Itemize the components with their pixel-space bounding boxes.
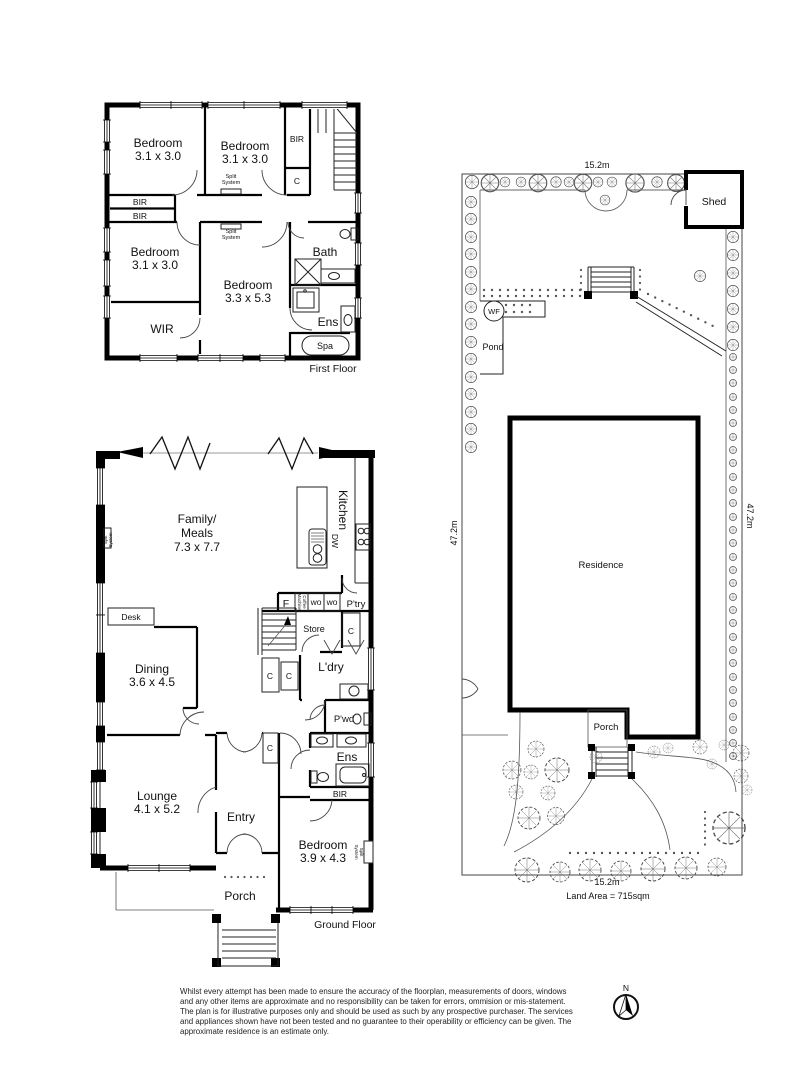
- ff-wir-label: WIR: [150, 322, 174, 336]
- ff-window: [208, 101, 280, 109]
- gf-powder-label: P'wd: [334, 714, 354, 725]
- ff-window: [103, 296, 111, 318]
- first-floor-plan: Bedroom 3.1 x 3.0 Bedroom 3.1 x 3.0 BIR …: [103, 101, 362, 375]
- ff-ens-label: Ens: [318, 315, 339, 329]
- gf-bay-window: [90, 770, 106, 868]
- site-dim-right: 47.2m: [745, 503, 755, 528]
- gf-window: [367, 743, 375, 777]
- gf-window: [96, 615, 105, 653]
- gf-window: [290, 906, 353, 914]
- gf-island-bench: [297, 487, 327, 568]
- gf-entry-label: Entry: [227, 810, 255, 824]
- site-plan: 15.2m Shed WF Pond 47.2m 47.2m Residence…: [449, 160, 755, 901]
- site-land-area: Land Area = 715sqm: [566, 891, 649, 901]
- gf-wo1-label: wo: [310, 597, 322, 607]
- ff-spa-label: Spa: [317, 341, 333, 351]
- ground-floor-plan: Family/ Meals 7.3 x 7.7 Kitchen DW Desk …: [90, 437, 376, 967]
- gf-laundry-fixtures: [340, 684, 368, 699]
- site-porch-label: Porch: [594, 722, 619, 733]
- gf-lounge-dim: 4.1 x 5.2: [134, 802, 180, 816]
- gf-family-dim: 7.3 x 7.7: [174, 540, 220, 554]
- ff-window: [354, 243, 362, 265]
- site-residence: [510, 418, 698, 737]
- gf-closet-entry-label: C: [267, 743, 273, 753]
- gf-closet2-label: C: [286, 671, 292, 681]
- gf-fridge-label: F: [283, 598, 289, 610]
- gf-ens-label: Ens: [337, 750, 358, 764]
- gf-bir-label: BIR: [333, 789, 347, 799]
- svg-text:System: System: [108, 532, 113, 547]
- gf-porch-label: Porch: [224, 889, 255, 903]
- floorplan-drawing: Bedroom 3.1 x 3.0 Bedroom 3.1 x 3.0 BIR …: [0, 0, 800, 1083]
- gf-window: [96, 702, 105, 726]
- gf-kitchen-label: Kitchen: [336, 490, 350, 530]
- ff-bedroom-bl-dim: 3.1 x 3.0: [132, 258, 178, 272]
- ff-window: [140, 354, 177, 362]
- gf-family-label2: Meals: [181, 526, 213, 540]
- gf-window: [96, 583, 105, 615]
- compass-north-label: N: [623, 983, 629, 993]
- site-wf-label: WF: [488, 307, 500, 316]
- ff-bir-top-label: BIR: [290, 134, 304, 144]
- gf-bedroom-label: Bedroom: [299, 838, 348, 852]
- gf-window: [96, 468, 105, 505]
- ff-bedroom-main-label: Bedroom: [224, 278, 273, 292]
- site-gate: [462, 679, 478, 698]
- gf-laundry-label: L'dry: [318, 660, 344, 674]
- gf-floor-label: Ground Floor: [314, 919, 376, 931]
- gf-bifold-doors: [117, 437, 345, 469]
- ff-window: [103, 228, 111, 252]
- ff-bedroom-main-dim: 3.3 x 5.3: [225, 291, 271, 305]
- site-shrubs-right: [730, 354, 737, 760]
- gf-closet1-label: C: [267, 671, 273, 681]
- svg-text:Machine: Machine: [297, 593, 302, 611]
- ff-stairs: [318, 105, 357, 190]
- site-trees-left: [465, 196, 476, 452]
- svg-text:System: System: [354, 844, 359, 859]
- ff-bir-left-1: BIR: [133, 197, 147, 207]
- ff-window: [140, 101, 202, 109]
- gf-kitchen-fixtures: [297, 458, 370, 583]
- ff-bath-label: Bath: [313, 245, 338, 259]
- gf-split-right-label: Split System: [354, 844, 364, 859]
- gf-window: [96, 742, 105, 770]
- gf-porch: [116, 872, 280, 967]
- site-trees-top: [465, 174, 684, 205]
- gf-store-label: Store: [303, 624, 325, 634]
- site-rear-deck: [484, 267, 726, 356]
- compass: N: [614, 983, 638, 1019]
- ff-window: [103, 260, 111, 286]
- ff-bedroom-bl-label: Bedroom: [131, 245, 180, 259]
- gf-lounge-label: Lounge: [137, 789, 177, 803]
- ff-closet-top-label: C: [294, 176, 300, 186]
- site-dim-top: 15.2m: [584, 160, 609, 170]
- gf-family-label: Family/: [178, 512, 217, 526]
- ff-window: [103, 150, 111, 174]
- ff-window: [354, 193, 362, 213]
- site-residence-label: Residence: [579, 560, 624, 571]
- gf-dining-dim: 3.6 x 4.5: [129, 675, 175, 689]
- ff-split-system-1b: System: [222, 180, 241, 186]
- ff-split-system-2b: System: [222, 235, 241, 241]
- ff-window: [103, 120, 111, 142]
- site-shed-label: Shed: [702, 196, 727, 208]
- floorplan-page: { "first_floor": { "floor_label": "First…: [0, 0, 800, 1083]
- ff-window: [198, 354, 243, 362]
- site-trees-right: [694, 231, 738, 350]
- ff-window: [260, 354, 285, 362]
- gf-pantry-label: P'try: [347, 599, 366, 610]
- site-pond-label: Pond: [482, 342, 503, 352]
- ff-bedroom-tl-label: Bedroom: [134, 136, 183, 150]
- ff-bedroom-tm-dim: 3.1 x 3.0: [222, 152, 268, 166]
- ff-bedroom-tl-dim: 3.1 x 3.0: [135, 149, 181, 163]
- gf-desk-label: Desk: [121, 612, 141, 622]
- gf-coffee-label: Coffee Machine: [297, 593, 307, 611]
- site-dim-bottom: 15.2m: [594, 877, 619, 887]
- ff-floor-label: First Floor: [309, 363, 357, 375]
- ff-bedroom-tm-label: Bedroom: [221, 139, 270, 153]
- gf-bedroom-dim: 3.9 x 4.3: [300, 851, 346, 865]
- gf-stairs: [258, 608, 296, 655]
- disclaimer-text: Whilst every attempt has been made to en…: [180, 987, 578, 1038]
- gf-closet-hall-label: C: [348, 626, 354, 636]
- gf-dw-label: DW: [330, 534, 340, 548]
- gf-dining-label: Dining: [135, 662, 169, 676]
- ff-bir-left-2: BIR: [133, 211, 147, 221]
- gf-wo2-label: wo: [326, 597, 338, 607]
- site-dim-left: 47.2m: [449, 520, 459, 545]
- gf-window: [128, 864, 190, 872]
- ff-window: [302, 101, 347, 109]
